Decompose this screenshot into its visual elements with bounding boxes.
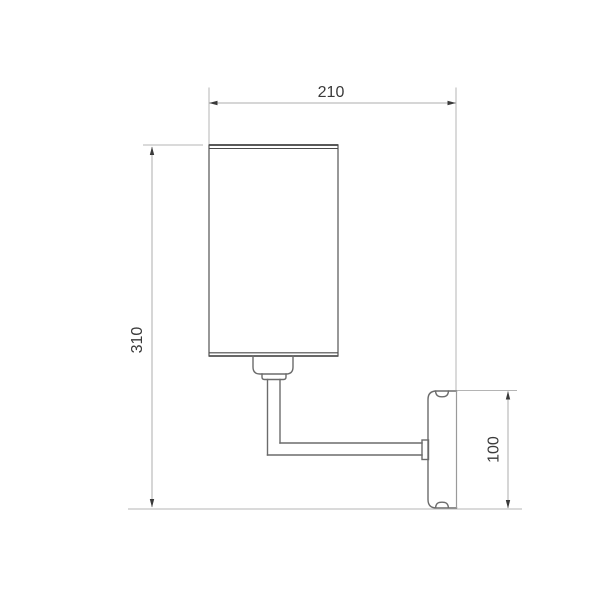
depth-arrowhead-left — [209, 101, 218, 105]
depth-dimension-label: 210 — [318, 84, 345, 101]
height-arrowhead-bottom — [150, 499, 154, 508]
depth-arrowhead-right — [448, 101, 457, 105]
lamp-fixture — [209, 145, 457, 508]
dimension-wall-plate-height: 100 — [457, 391, 517, 509]
wall-plate — [428, 391, 457, 508]
lamp-shade — [209, 145, 338, 356]
wall-plate-screw-notch-top — [436, 391, 449, 397]
plate-dimension-label: 100 — [486, 436, 503, 463]
height-arrowhead-top — [150, 147, 154, 156]
dimension-overall-depth: 210 — [209, 84, 456, 391]
technical-drawing-canvas: 210 310 100 — [0, 0, 600, 600]
plate-arrowhead-top — [506, 391, 510, 400]
socket-collar — [262, 374, 286, 380]
wall-lamp-dimension-drawing: 210 310 100 — [0, 0, 600, 600]
wall-plate-screw-notch-bottom — [436, 502, 449, 508]
height-dimension-label: 310 — [129, 327, 146, 354]
lamp-socket — [253, 356, 293, 374]
plate-arrowhead-bottom — [506, 500, 510, 509]
